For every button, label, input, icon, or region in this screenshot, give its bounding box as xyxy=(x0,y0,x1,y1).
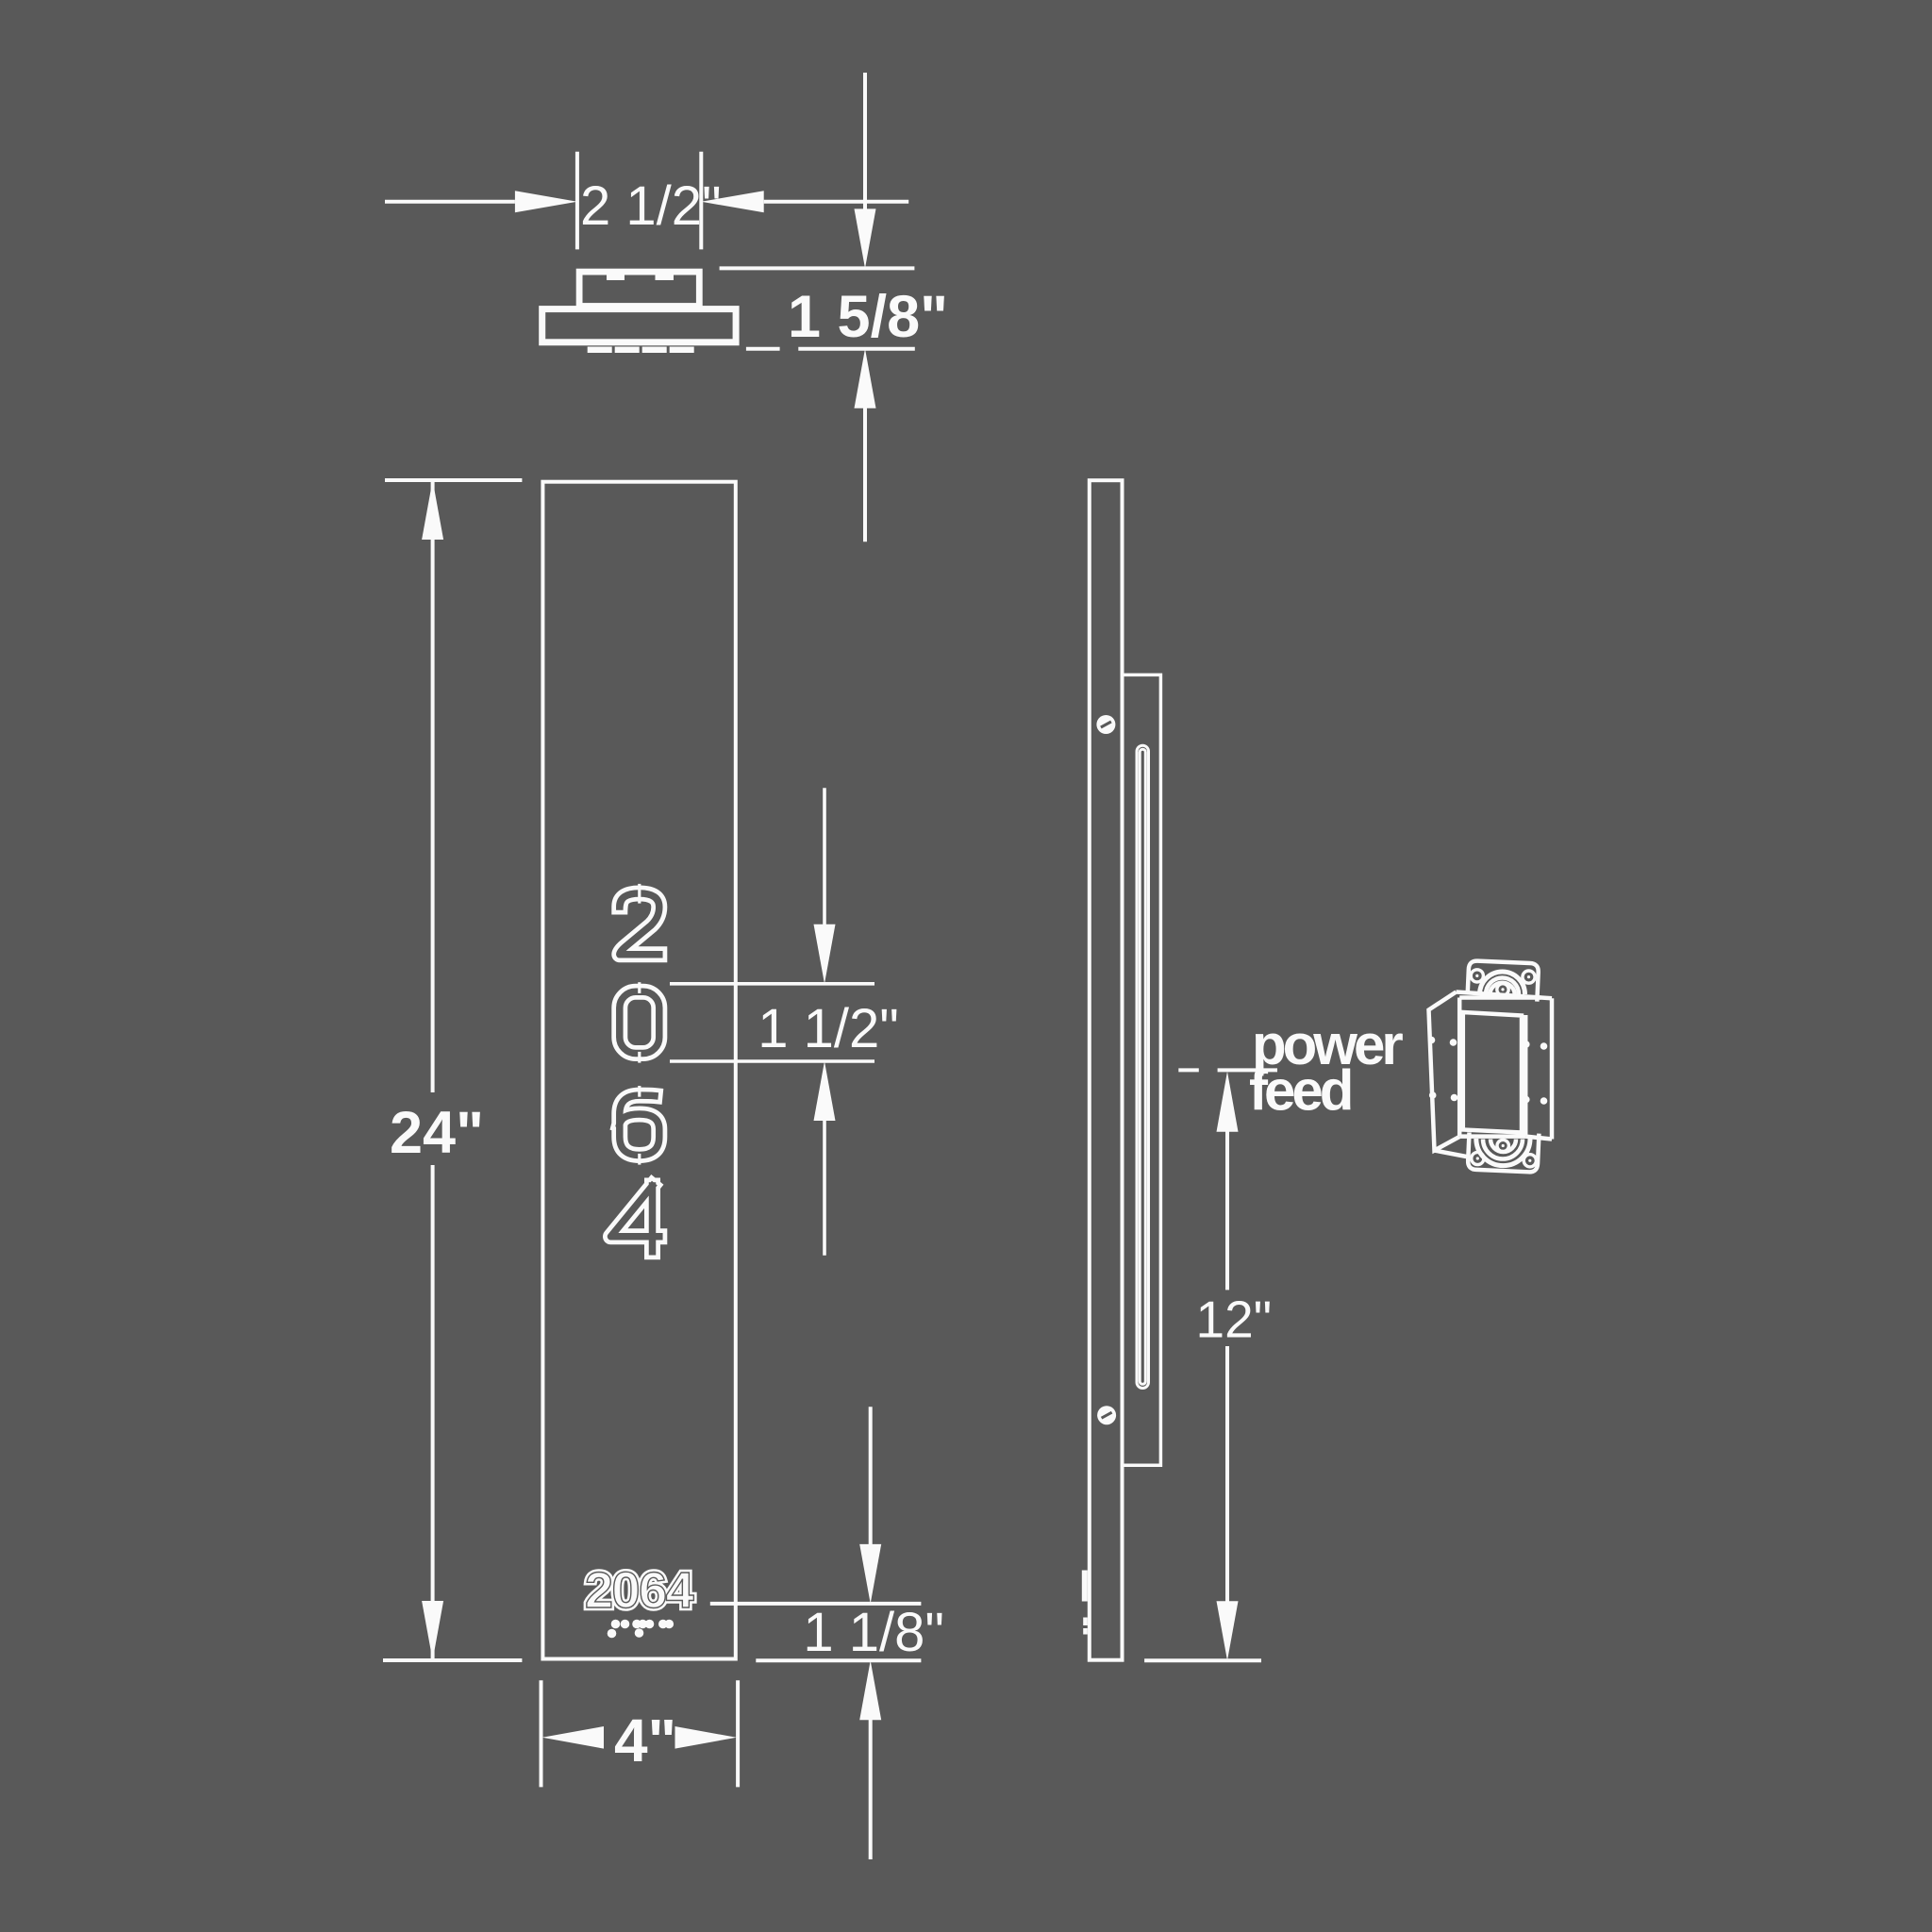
svg-text:4": 4" xyxy=(614,1707,676,1774)
svg-text:12": 12" xyxy=(1196,1290,1273,1348)
svg-text:1 1/8": 1 1/8" xyxy=(803,1602,944,1663)
svg-text:1 1/2": 1 1/2" xyxy=(758,998,899,1059)
svg-text:2064: 2064 xyxy=(585,1562,694,1619)
svg-text:2 1/2": 2 1/2" xyxy=(580,175,722,237)
svg-text:1 5/8": 1 5/8" xyxy=(788,284,948,350)
svg-text:feed: feed xyxy=(1249,1059,1351,1123)
svg-text:24": 24" xyxy=(390,1100,484,1166)
